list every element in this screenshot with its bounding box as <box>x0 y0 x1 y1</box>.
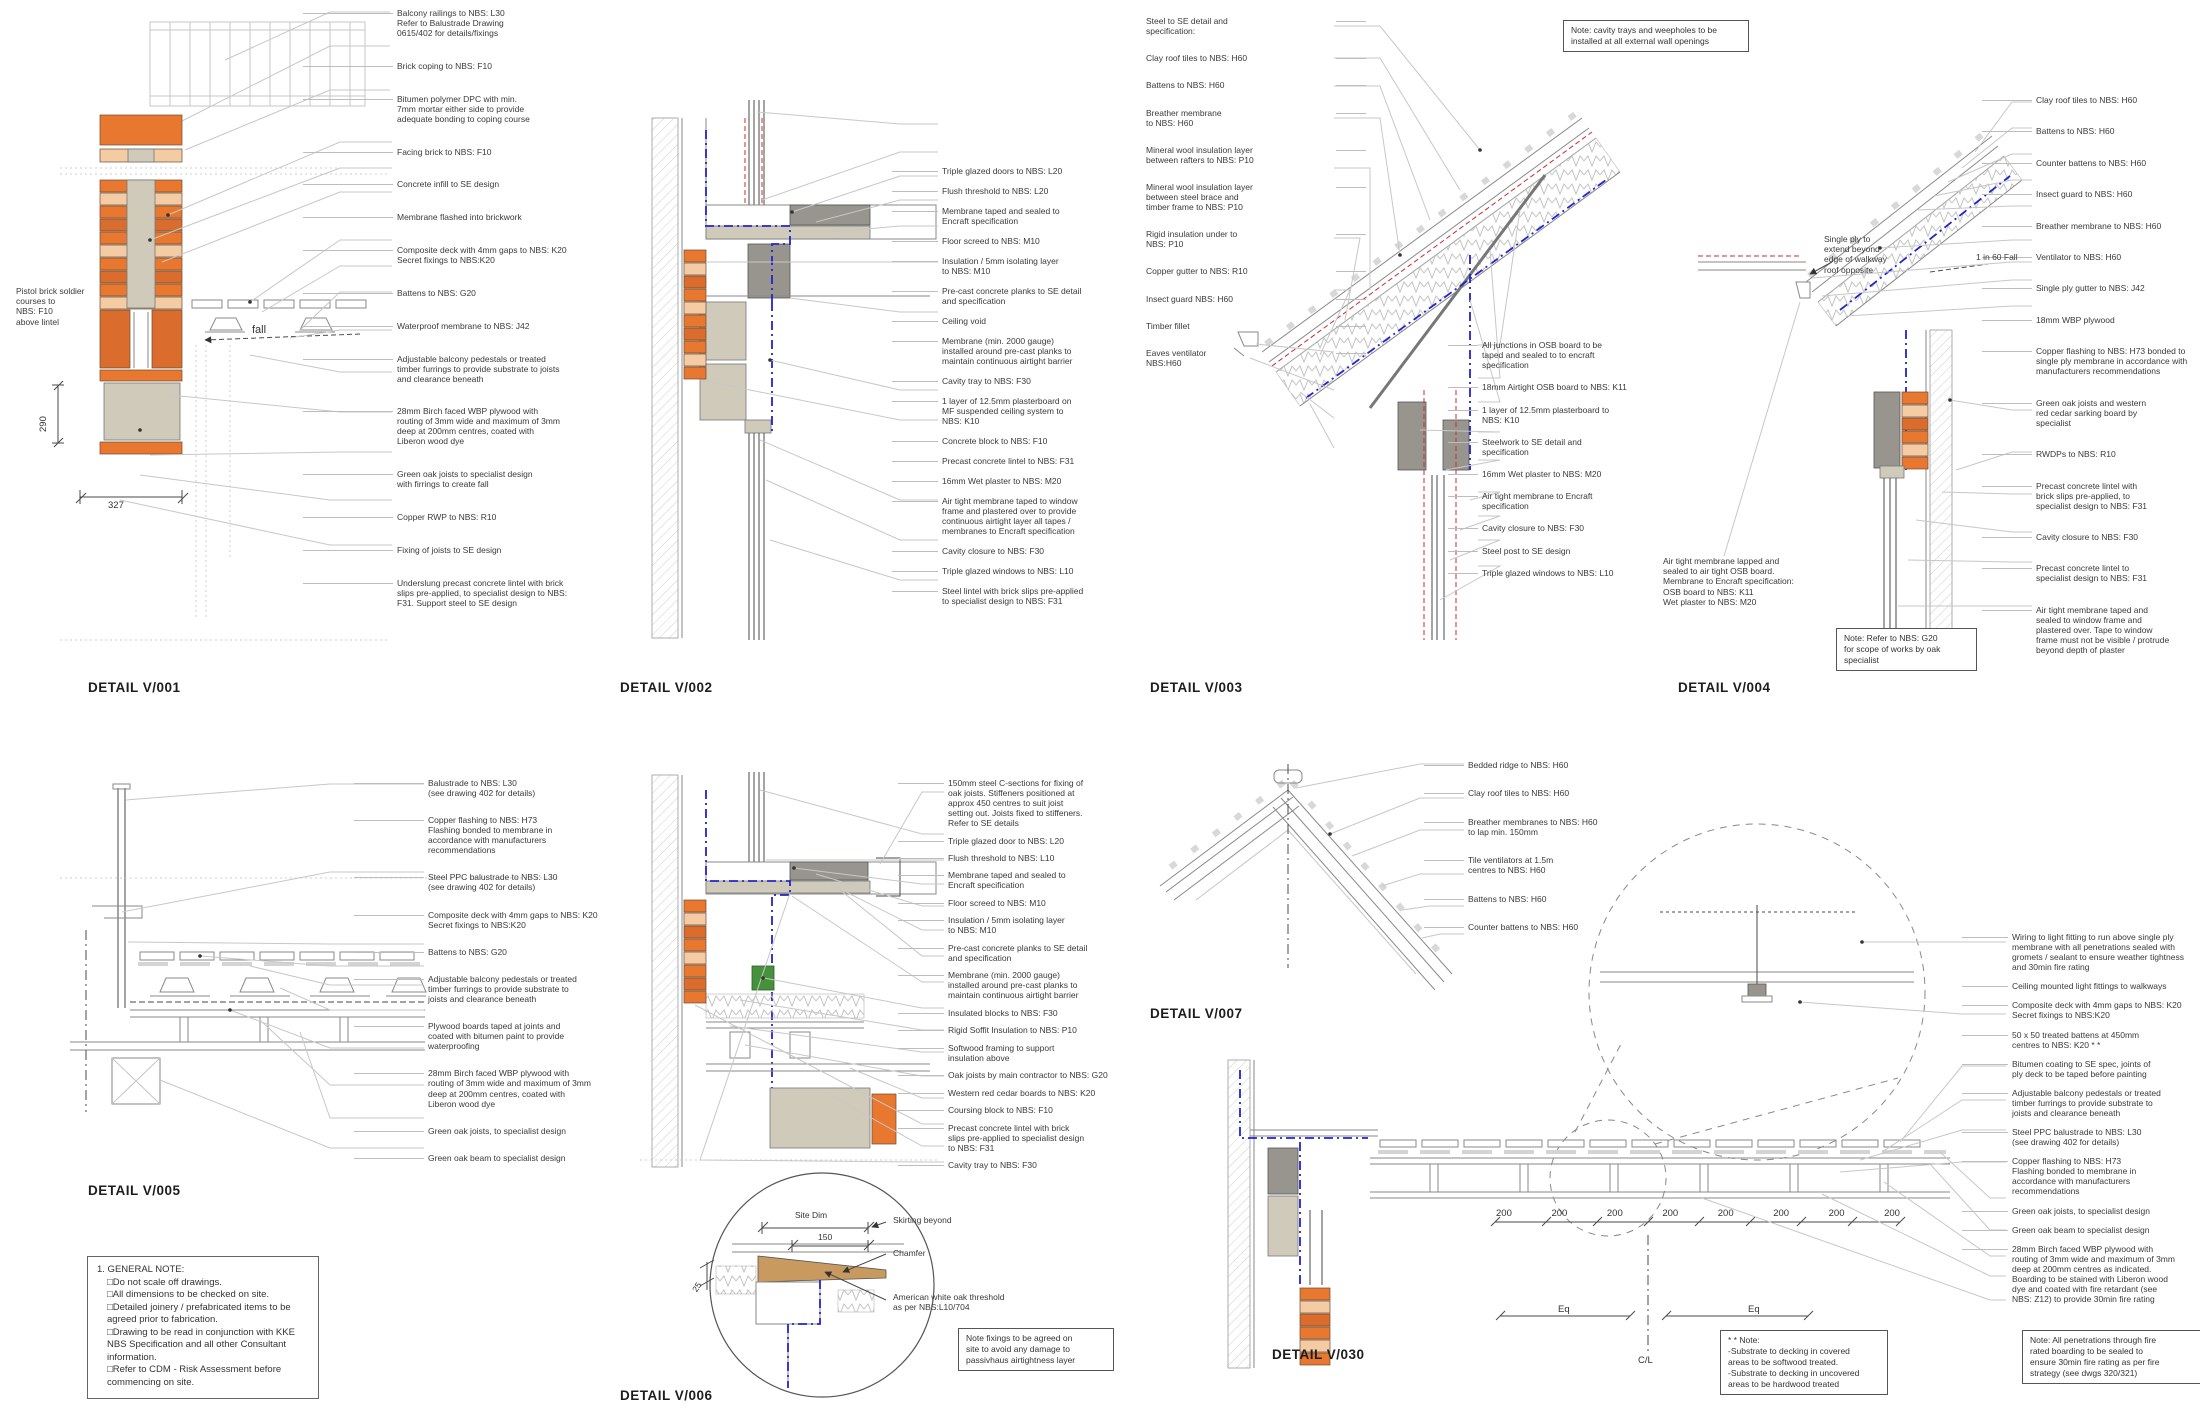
annotation-label: Cavity tray to NBS: F30 <box>948 1160 1134 1170</box>
annotation-label: Steel PPC balustrade to NBS: L30 (see dr… <box>428 872 614 892</box>
fall-1in60-label: 1 in 60 Fall <box>1976 252 2018 262</box>
annotation-label: Insulation / 5mm isolating layer to NBS:… <box>942 256 1120 276</box>
annotation-label: Floor screed to NBS: M10 <box>942 236 1120 246</box>
airtight-osb-label: Air tight membrane lapped and sealed to … <box>1663 556 1838 607</box>
annotation-label: Steel lintel with brick slips pre-applie… <box>942 586 1120 606</box>
annotation-label: Copper flashing to NBS: H73 Flashing bon… <box>2012 1156 2200 1196</box>
dim-150: 150 <box>818 1232 832 1242</box>
annotation-label: Membrane (min. 2000 gauge) installed aro… <box>942 336 1120 366</box>
detail-v001-title: DETAIL V/001 <box>88 680 181 695</box>
annotation-label: Timber fillet <box>1146 321 1332 331</box>
general-note-line: □Detailed joinery / prefabricated items … <box>97 1302 309 1327</box>
dim-200: 200 <box>1773 1208 1789 1219</box>
annotation-label: 28mm Birch faced WBP plywood with routin… <box>397 406 585 446</box>
annotation-label: Composite deck with 4mm gaps to NBS: K20… <box>397 245 585 265</box>
single-ply-label: Single ply to extend beyond edge of walk… <box>1824 234 1906 275</box>
annotation-label: Facing brick to NBS: F10 <box>397 147 585 157</box>
v004-annotations: Clay roof tiles to NBS: H60Battens to NB… <box>2036 95 2198 655</box>
annotation-label: Green oak beam to specialist design <box>428 1153 614 1163</box>
general-note-line: □Do not scale off drawings. <box>97 1277 309 1290</box>
annotation-label: Wiring to light fitting to run above sin… <box>2012 932 2200 972</box>
general-note-title: 1. GENERAL NOTE: <box>97 1264 309 1277</box>
drawing-sheet: Balcony railings to NBS: L30 Refer to Ba… <box>0 0 2200 1415</box>
detail-v004-title: DETAIL V/004 <box>1678 680 1771 695</box>
annotation-label: Balcony railings to NBS: L30 Refer to Ba… <box>397 8 585 38</box>
eq-label-left: Eq <box>1558 1304 1570 1315</box>
annotation-label: Counter battens to NBS: H60 <box>2036 158 2198 168</box>
annotation-label: Green oak joists, to specialist design <box>428 1126 614 1136</box>
v005-annotations: Balustrade to NBS: L30 (see drawing 402 … <box>428 778 614 1163</box>
annotation-label: Air tight membrane taped to window frame… <box>942 496 1120 536</box>
annotation-label: Flush threshold to NBS: L10 <box>948 853 1134 863</box>
annotation-label: 150mm steel C-sections for fixing of oak… <box>948 778 1134 828</box>
annotation-label: Floor screed to NBS: M10 <box>948 898 1134 908</box>
annotation-label: Triple glazed windows to NBS: L10 <box>1482 568 1662 578</box>
dim-200: 200 <box>1829 1208 1845 1219</box>
v030-annotations: Wiring to light fitting to run above sin… <box>2012 932 2200 1304</box>
annotation-label: Flush threshold to NBS: L20 <box>942 186 1120 196</box>
annotation-label: Single ply gutter to NBS: J42 <box>2036 283 2198 293</box>
annotation-label: Precast concrete lintel to NBS: F31 <box>942 456 1120 466</box>
general-note: 1. GENERAL NOTE: □Do not scale off drawi… <box>87 1256 319 1399</box>
dim-200: 200 <box>1718 1208 1734 1219</box>
dim-200: 200 <box>1607 1208 1623 1219</box>
annotation-label: Composite deck with 4mm gaps to NBS: K20… <box>428 910 614 930</box>
annotation-label: Insulation / 5mm isolating layer to NBS:… <box>948 915 1134 935</box>
v003-annotations-left: Steel to SE detail and specification:Cla… <box>1146 16 1332 368</box>
annotation-label: 1 layer of 12.5mm plasterboard to NBS: K… <box>1482 405 1662 425</box>
pistol-brick-label: Pistol brick soldier courses to NBS: F10… <box>16 286 98 327</box>
annotation-label: Air tight membrane taped and sealed to w… <box>2036 605 2198 655</box>
annotation-label: Steel to SE detail and specification: <box>1146 16 1332 36</box>
annotation-label: Softwood framing to support insulation a… <box>948 1043 1134 1063</box>
annotation-label: Breather membranes to NBS: H60 to lap mi… <box>1468 817 1648 837</box>
annotation-label: Cavity closure to NBS: F30 <box>1482 523 1662 533</box>
detail-v002-title: DETAIL V/002 <box>620 680 713 695</box>
annotation-label: 28mm Birch faced WBP plywood with routin… <box>2012 1244 2200 1304</box>
annotation-label: Battens to NBS: H60 <box>2036 126 2198 136</box>
dim-200: 200 <box>1662 1208 1678 1219</box>
annotation-label: Ceiling void <box>942 316 1120 326</box>
v007-drawing <box>1160 764 1464 990</box>
annotation-label: Battens to NBS: H60 <box>1468 894 1648 904</box>
annotation-label: Plywood boards taped at joints and coate… <box>428 1021 614 1051</box>
skirting-label: Skirting beyond <box>893 1215 952 1225</box>
annotation-label: Copper flashing to NBS: H73 bonded to si… <box>2036 346 2198 376</box>
annotation-label: Clay roof tiles to NBS: H60 <box>1146 53 1332 63</box>
v002-drawing <box>652 100 938 640</box>
annotation-label: Copper RWP to NBS: R10 <box>397 512 585 522</box>
annotation-label: Clay roof tiles to NBS: H60 <box>1468 788 1648 798</box>
general-note-lines: □Do not scale off drawings.□All dimensio… <box>97 1277 309 1390</box>
annotation-label: Green oak joists and western red cedar s… <box>2036 398 2198 428</box>
annotation-label: Rigid Soffit Insulation to NBS: P10 <box>948 1025 1134 1035</box>
annotation-label: Adjustable balcony pedestals or treated … <box>2012 1088 2200 1118</box>
annotation-label: Membrane flashed into brickwork <box>397 212 585 222</box>
annotation-label: Steelwork to SE detail and specification <box>1482 437 1662 457</box>
annotation-label: Battens to NBS: H60 <box>1146 80 1332 90</box>
annotation-label: Precast concrete lintel to specialist de… <box>2036 563 2198 583</box>
annotation-label: Coursing block to NBS: F10 <box>948 1105 1134 1115</box>
annotation-label: Bedded ridge to NBS: H60 <box>1468 760 1648 770</box>
annotation-label: Membrane taped and sealed to Encraft spe… <box>942 206 1120 226</box>
annotation-label: Cavity tray to NBS: F30 <box>942 376 1120 386</box>
annotation-label: Membrane taped and sealed to Encraft spe… <box>948 870 1134 890</box>
dim-200: 200 <box>1496 1208 1512 1219</box>
annotation-label: Breather membrane to NBS: H60 <box>1146 108 1332 128</box>
annotation-label: Insect guard NBS: H60 <box>1146 294 1332 304</box>
annotation-label: Insect guard to NBS: H60 <box>2036 189 2198 199</box>
annotation-label: Oak joists by main contractor to NBS: G2… <box>948 1070 1134 1080</box>
annotation-label: Membrane (min. 2000 gauge) installed aro… <box>948 970 1134 1000</box>
annotation-label: Concrete infill to SE design <box>397 179 585 189</box>
annotation-label: Copper flashing to NBS: H73 Flashing bon… <box>428 815 614 855</box>
annotation-label: Rigid insulation under to NBS: P10 <box>1146 229 1332 249</box>
annotation-label: Green oak joists, to specialist design <box>2012 1206 2200 1216</box>
annotation-label: Western red cedar boards to NBS: K20 <box>948 1088 1134 1098</box>
annotation-label: Eaves ventilator NBS:H60 <box>1146 348 1332 368</box>
annotation-label: 18mm Airtight OSB board to NBS: K11 <box>1482 382 1662 392</box>
substrate-note: * * Note: -Substrate to decking in cover… <box>1720 1330 1888 1395</box>
annotation-label: 50 x 50 treated battens at 450mm centres… <box>2012 1030 2200 1050</box>
dim-290: 290 <box>38 416 49 432</box>
general-note-line: □Refer to CDM - Risk Assessment before c… <box>97 1364 309 1389</box>
annotation-label: Brick coping to NBS: F10 <box>397 61 585 71</box>
annotation-label: Triple glazed doors to NBS: L20 <box>942 166 1120 176</box>
annotation-label: Clay roof tiles to NBS: H60 <box>2036 95 2198 105</box>
annotation-label: Triple glazed windows to NBS: L10 <box>942 566 1120 576</box>
annotation-label: Breather membrane to NBS: H60 <box>2036 221 2198 231</box>
annotation-label: Counter battens to NBS: H60 <box>1468 922 1648 932</box>
detail-v030-title: DETAIL V/030 <box>1272 1347 1365 1362</box>
annotation-label: Adjustable balcony pedestals or treated … <box>397 354 585 384</box>
dim-200: 200 <box>1551 1208 1567 1219</box>
annotation-label: Adjustable balcony pedestals or treated … <box>428 974 614 1004</box>
annotation-label: Balustrade to NBS: L30 (see drawing 402 … <box>428 778 614 798</box>
annotation-label: Battens to NBS: G20 <box>428 947 614 957</box>
general-note-line: □All dimensions to be checked on site. <box>97 1289 309 1302</box>
general-note-line: □Drawing to be read in conjunction with … <box>97 1327 309 1365</box>
annotation-label: 18mm WBP plywood <box>2036 315 2198 325</box>
annotation-label: All junctions in OSB board to be taped a… <box>1482 340 1662 370</box>
oak-threshold-label: American white oak threshold as per NBS:… <box>893 1292 1063 1312</box>
fixings-note: Note fixings to be agreed on site to avo… <box>958 1328 1114 1371</box>
annotation-label: Triple glazed door to NBS: L20 <box>948 836 1134 846</box>
cavity-trays-note: Note: cavity trays and weepholes to be i… <box>1563 20 1749 52</box>
annotation-label: Bitumen coating to SE spec, joints of pl… <box>2012 1059 2200 1079</box>
annotation-label: Pre-cast concrete planks to SE detail an… <box>948 943 1134 963</box>
v001-annotations: Balcony railings to NBS: L30 Refer to Ba… <box>397 8 585 608</box>
detail-v006-title: DETAIL V/006 <box>620 1388 713 1403</box>
annotation-label: Bitumen polymer DPC with min. 7mm mortar… <box>397 94 585 124</box>
annotation-label: Composite deck with 4mm gaps to NBS: K20… <box>2012 1000 2200 1020</box>
annotation-label: Fixing of joists to SE design <box>397 545 585 555</box>
site-dim-label: Site Dim <box>795 1210 827 1220</box>
annotation-label: Tile ventilators at 1.5m centres to NBS:… <box>1468 855 1648 875</box>
annotation-label: Underslung precast concrete lintel with … <box>397 578 585 608</box>
annotation-label: Precast concrete lintel with brick slips… <box>2036 481 2198 511</box>
annotation-label: Pre-cast concrete planks to SE detail an… <box>942 286 1120 306</box>
annotation-label: Concrete block to NBS: F10 <box>942 436 1120 446</box>
annotation-label: Cavity closure to NBS: F30 <box>2036 532 2198 542</box>
annotation-label: Waterproof membrane to NBS: J42 <box>397 321 585 331</box>
annotation-label: 16mm Wet plaster to NBS: M20 <box>942 476 1120 486</box>
annotation-label: Green oak joists to specialist design wi… <box>397 469 585 489</box>
annotation-label: Ceiling mounted light fittings to walkwa… <box>2012 981 2200 991</box>
v002-annotations: Triple glazed doors to NBS: L20Flush thr… <box>942 166 1120 606</box>
annotation-label: Green oak beam to specialist design <box>2012 1225 2200 1235</box>
chamfer-label: Chamfer <box>893 1248 926 1258</box>
annotation-label: Steel post to SE design <box>1482 546 1662 556</box>
v003-annotations-right: All junctions in OSB board to be taped a… <box>1482 340 1662 578</box>
eq-label-right: Eq <box>1748 1304 1760 1315</box>
centreline-label: C/L <box>1638 1355 1653 1366</box>
annotation-label: RWDPs to NBS: R10 <box>2036 449 2198 459</box>
dim-327: 327 <box>108 500 124 511</box>
annotation-label: Cavity closure to NBS: F30 <box>942 546 1120 556</box>
oak-scope-note: Note: Refer to NBS: G20 for scope of wor… <box>1836 628 1977 671</box>
annotation-label: Copper gutter to NBS: R10 <box>1146 266 1332 276</box>
dim-200: 200 <box>1884 1208 1900 1219</box>
detail-v005-title: DETAIL V/005 <box>88 1183 181 1198</box>
annotation-label: Mineral wool insulation layer between st… <box>1146 182 1332 212</box>
annotation-label: Insulated blocks to NBS: F30 <box>948 1008 1134 1018</box>
v007-annotations: Bedded ridge to NBS: H60Clay roof tiles … <box>1468 760 1648 932</box>
detail-v003-title: DETAIL V/003 <box>1150 680 1243 695</box>
annotation-label: Precast concrete lintel with brick slips… <box>948 1123 1134 1153</box>
annotation-label: Ventilator to NBS: H60 <box>2036 252 2198 262</box>
detail-v007-title: DETAIL V/007 <box>1150 1006 1243 1021</box>
annotation-label: Battens to NBS: G20 <box>397 288 585 298</box>
fire-penetrations-note: Note: All penetrations through fire rate… <box>2022 1330 2200 1384</box>
annotation-label: 16mm Wet plaster to NBS: M20 <box>1482 469 1662 479</box>
annotation-label: Mineral wool insulation layer between ra… <box>1146 145 1332 165</box>
annotation-label: 1 layer of 12.5mm plasterboard on MF sus… <box>942 396 1120 426</box>
fall-label: fall <box>252 324 266 336</box>
annotation-label: Air tight membrane to Encraft specificat… <box>1482 491 1662 511</box>
annotation-label: 28mm Birch faced WBP plywood with routin… <box>428 1068 614 1108</box>
dim-200-row: 200200200200200200200200 <box>1496 1208 1900 1219</box>
annotation-label: Steel PPC balustrade to NBS: L30 (see dr… <box>2012 1127 2200 1147</box>
v006-annotations: 150mm steel C-sections for fixing of oak… <box>948 778 1134 1170</box>
